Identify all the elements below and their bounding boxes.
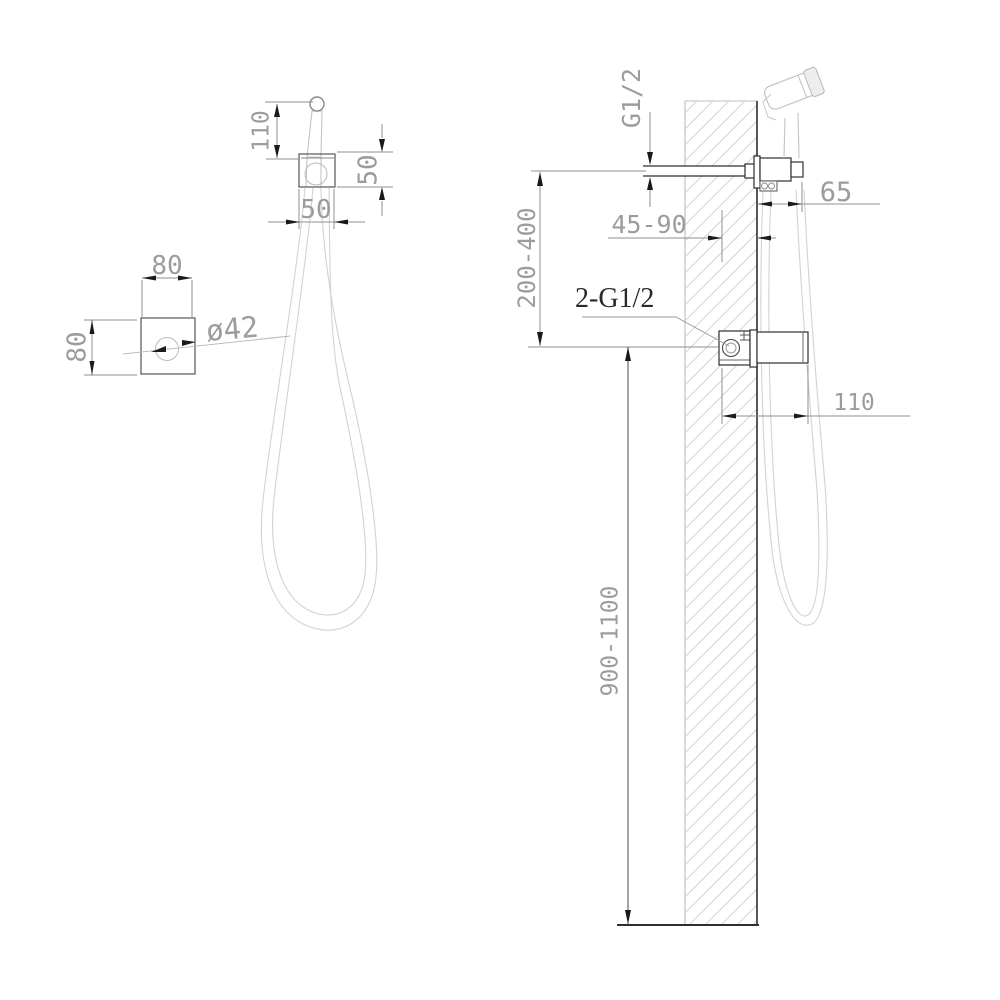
hatch-line [685, 249, 757, 321]
wall-hatch [685, 101, 757, 925]
dim-bracket-width: 50 [268, 189, 365, 229]
hatch-line [685, 553, 757, 625]
dim-mount-height: 900-1100 [598, 347, 632, 924]
arrow-left [334, 220, 348, 225]
hatch-line [685, 617, 757, 689]
holder-flange [754, 156, 760, 188]
dim-label-bracket-width: 50 [300, 195, 331, 225]
dim-label-valve-width: 110 [833, 390, 875, 416]
sprayer-head-side [762, 67, 825, 114]
hatch-line [685, 361, 757, 433]
hatch-line [685, 681, 757, 753]
wall-holder-side [754, 156, 803, 191]
dim-top-depth: 80 [63, 320, 138, 375]
hatch-line [685, 489, 757, 561]
hatch-line [685, 537, 757, 609]
holder-body [760, 158, 791, 181]
hatch-line [685, 393, 757, 465]
hatch-line [685, 185, 757, 257]
hatch-line [685, 101, 713, 129]
hatch-line [685, 713, 757, 785]
hatch-line [685, 601, 757, 673]
hatch-line [685, 825, 757, 897]
hatch-line [685, 665, 757, 737]
hatch-line [685, 217, 757, 289]
dim-thread: G1/2 [617, 68, 653, 207]
hatch-line [685, 457, 757, 529]
hatch-line [685, 377, 757, 449]
arrow-right [286, 220, 300, 225]
hatch-line [685, 265, 757, 337]
arrow-right [794, 414, 808, 419]
dim-label-holder-offset: 65 [820, 177, 853, 208]
arrow-up [647, 177, 653, 190]
arrow-up [537, 172, 543, 186]
sprayer-ball-top [310, 97, 324, 111]
dim-label-bracket-height: 50 [354, 154, 384, 185]
hatch-line [685, 569, 757, 641]
hatch-line [685, 633, 757, 705]
arrow-down [379, 139, 385, 152]
dim-handle-height: 110 [249, 102, 314, 159]
hatch-line [685, 101, 729, 145]
arrow-down [274, 145, 280, 158]
hatch-line [685, 729, 757, 801]
sprayer-side [762, 67, 825, 158]
hatch-line [721, 889, 757, 925]
dim-hole: ø42 [123, 310, 290, 354]
dim-top-width: 80 [142, 251, 192, 317]
hatch-line [685, 777, 757, 849]
dim-label-handle-height: 110 [249, 110, 275, 152]
valve-handle-box [757, 332, 808, 363]
arrow-right [788, 202, 802, 207]
hatch-line [685, 121, 757, 193]
hatch-line [685, 505, 757, 577]
dim-label-upper-height: 200-400 [513, 207, 541, 308]
concealed-valve [719, 330, 808, 367]
dim-label-embed-depth: 45-90 [611, 210, 686, 239]
arrow-left [758, 202, 772, 207]
hatch-line [685, 101, 745, 161]
hatch-line [685, 585, 757, 657]
hatch-line [685, 425, 757, 497]
arrow-down [625, 910, 631, 924]
hatch-line [685, 201, 757, 273]
hatch-line [685, 761, 757, 833]
arrow-down [647, 152, 653, 165]
bracket-hole-front [305, 163, 327, 185]
hatch-line [705, 873, 757, 925]
top-view: ø42 80 80 [63, 251, 291, 375]
hatch-line [685, 521, 757, 593]
dim-bracket-height: 50 [337, 124, 393, 216]
hose-inner-front [273, 188, 366, 615]
dim-label-thread: G1/2 [617, 68, 646, 128]
hatch-line [685, 745, 757, 817]
holder-cup [791, 162, 803, 177]
arrow-up [625, 347, 631, 361]
drawing-canvas: G1/2 200-400 45-90 65 [0, 0, 1000, 1000]
hatch-line [685, 697, 757, 769]
arrow-left [722, 414, 736, 419]
hose-outer-front [261, 188, 376, 630]
arrow-down [537, 332, 543, 346]
hatch-line [685, 649, 757, 721]
bracket-top-view [141, 318, 195, 374]
front-view: 110 50 50 [249, 97, 394, 630]
side-view: G1/2 200-400 45-90 65 [513, 67, 910, 925]
technical-drawing: G1/2 200-400 45-90 65 [0, 0, 1000, 1000]
dim-label-top-width: 80 [151, 251, 182, 281]
arrow-right [182, 340, 196, 346]
dim-label-top-depth: 80 [63, 331, 93, 362]
dim-label-hole: ø42 [205, 310, 260, 348]
hatch-line [685, 233, 757, 305]
annotation-label-connections: 2-G1/2 [575, 283, 654, 314]
hatch-line [685, 441, 757, 513]
sprayer-handle-front [307, 111, 322, 157]
bracket-front [299, 154, 335, 187]
dim-label-mount-height: 900-1100 [598, 586, 624, 697]
hatch-line [685, 793, 757, 865]
arrow-right [708, 236, 722, 241]
arrow-left [151, 346, 166, 352]
annotation-connections: 2-G1/2 [575, 283, 729, 346]
hatch-line [685, 473, 757, 545]
hatch-line [685, 841, 757, 913]
hatch-line [737, 905, 757, 925]
arrow-left [757, 236, 771, 241]
arrow-up [274, 104, 280, 117]
sprayer-handle-side [784, 113, 799, 158]
pipe-body [643, 166, 745, 176]
valve-flange [750, 330, 757, 367]
hatch-line [685, 409, 757, 481]
arrow-up [379, 187, 385, 200]
sprayer-handle-lower [306, 158, 307, 187]
hatch-line [685, 101, 697, 113]
hatch-line [685, 809, 757, 881]
hose-inner-side [769, 190, 819, 616]
dim-upper-height: 200-400 [513, 171, 719, 347]
hatch-line [685, 169, 757, 241]
